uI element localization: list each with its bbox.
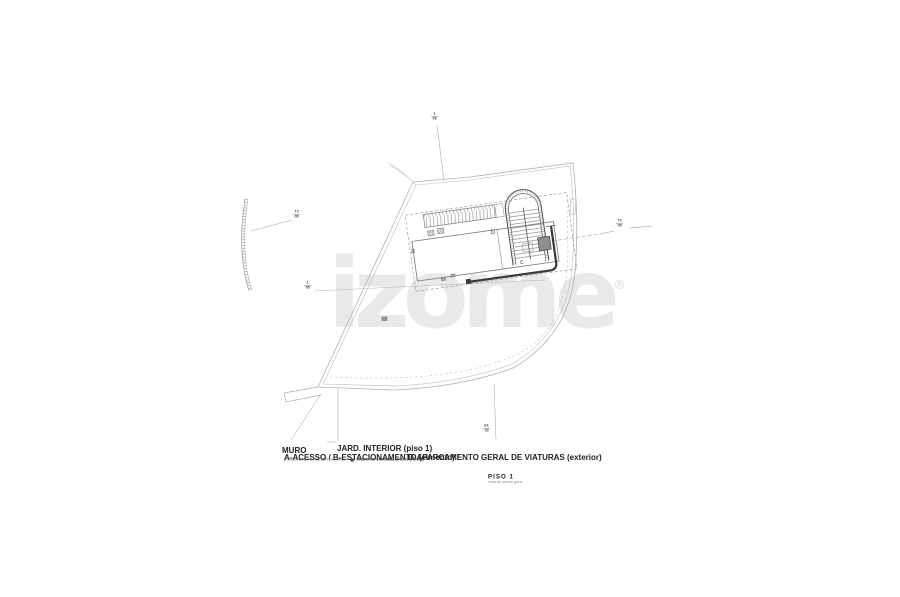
marker-r-number: T2	[617, 219, 621, 223]
impermeable-area-swatch-icon	[350, 458, 353, 461]
section-marker-bottom: E1 03	[483, 424, 490, 433]
l-wall-endblock	[466, 279, 472, 285]
right-section-solid	[600, 226, 652, 234]
marker-b-number: E1	[484, 424, 488, 428]
section-marker-left-lower: 1 05	[304, 281, 311, 290]
stair-strip-endbox	[495, 203, 505, 217]
tag-box-2	[451, 274, 455, 278]
stair-label-c: c	[520, 251, 524, 269]
tag-box-1	[441, 277, 445, 281]
room-label-a: a	[411, 240, 415, 258]
marker-ll-number: 1	[307, 281, 309, 285]
site-boundary-inner	[323, 166, 574, 386]
marker-lu-number: T2	[294, 210, 298, 214]
marker-ll-sheet: 05	[306, 286, 310, 290]
site-tag-box	[382, 317, 387, 321]
long-section-line	[314, 280, 545, 291]
site-plan-canvas: izome®	[0, 0, 900, 597]
road-strip	[284, 387, 321, 402]
jardim-leader	[327, 389, 338, 442]
mini-hatch-box-1	[428, 230, 435, 236]
room-divider	[497, 229, 503, 269]
muro-leader	[291, 394, 321, 440]
section-marker-left-upper: T2 05	[293, 210, 300, 219]
bottom-section-line	[494, 384, 496, 440]
section-marker-right: T2 05	[616, 219, 623, 228]
title-block: PISO 1 vista de planta geral	[488, 473, 560, 496]
mini-hatch-box-2	[437, 228, 444, 234]
legend-line2: (C-ESCADAS DE ACESSO (exterior)) ÁREAS I…	[284, 458, 594, 466]
marker-top-number: 1	[434, 112, 436, 116]
top-section-line	[437, 125, 444, 181]
service-block	[538, 236, 552, 251]
left-arc-leader	[251, 220, 292, 231]
legend-line2-left: (C-ESCADAS DE ACESSO (exterior))	[284, 458, 345, 462]
marker-top-sheet: 05	[433, 117, 437, 121]
sheet-title: PISO 1	[488, 473, 522, 479]
room-label-b: b	[491, 221, 495, 239]
right-section-dash	[552, 234, 600, 241]
marker-r-sheet: 05	[618, 224, 622, 228]
section-marker-top: 1 05	[431, 112, 438, 121]
stair-strip-hatch	[423, 205, 496, 228]
legend-line2-right: ÁREAS IMPERMEABILIZADAS (PISO 1)	[356, 458, 423, 462]
marker-b-sheet: 03	[485, 429, 489, 433]
boundary-extension	[388, 163, 416, 185]
sheet-subtitle: vista de planta geral	[488, 480, 522, 484]
plan-drawing	[0, 0, 900, 597]
retaining-arc-hatch	[243, 199, 250, 291]
marker-lu-sheet: 05	[295, 215, 299, 219]
